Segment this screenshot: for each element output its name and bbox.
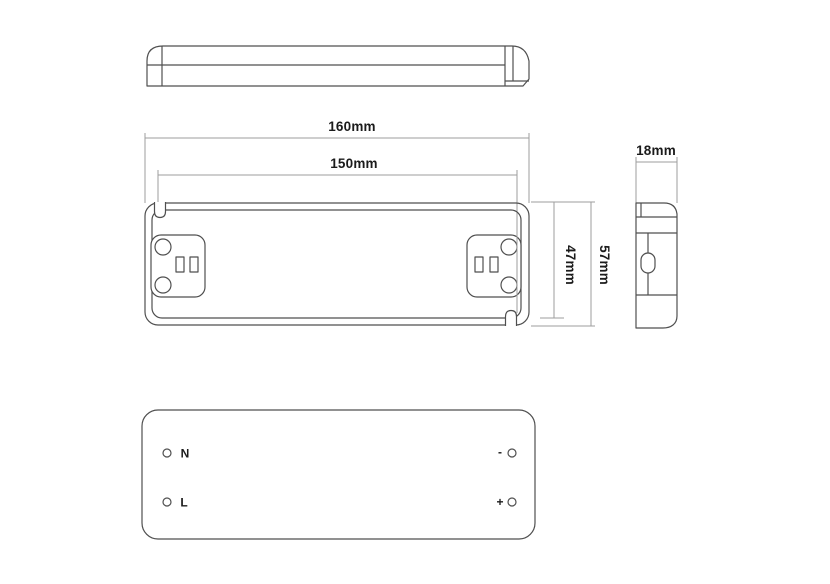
led-driver-dimension-drawing: N L - + 160mm 150mm 18mm 47mm 57mm — [0, 0, 830, 584]
technical-drawing-page: N L - + 160mm 150mm 18mm 47mm 57mm — [0, 0, 830, 584]
front-view — [145, 202, 529, 326]
dimension-label-47mm: 47mm — [563, 245, 578, 285]
dimension-lines — [145, 133, 677, 326]
knockout-oval — [641, 253, 655, 273]
terminal-hole-live — [163, 498, 171, 506]
side-view-outline — [147, 46, 529, 86]
dimension-label-18mm: 18mm — [636, 143, 676, 158]
terminal-label-neutral: N — [181, 447, 190, 461]
dimension-label-160mm: 160mm — [328, 119, 376, 134]
terminal-hole-neutral — [163, 449, 171, 457]
dimension-label-57mm: 57mm — [597, 245, 612, 285]
terminal-hole-negative — [508, 449, 516, 457]
terminal-block-right — [467, 235, 521, 297]
front-view-inner-outline — [152, 210, 521, 318]
mounting-notch-top-left — [155, 202, 166, 218]
dimension-label-150mm: 150mm — [330, 156, 378, 171]
end-view — [636, 203, 677, 328]
terminal-label-negative: - — [498, 445, 502, 459]
terminal-block-left-body — [151, 235, 205, 297]
bottom-view-outline — [142, 410, 535, 539]
mounting-notch-bottom-right — [506, 311, 517, 327]
bottom-view: N L - + — [142, 410, 535, 539]
terminal-label-positive: + — [496, 495, 503, 509]
terminal-hole-positive — [508, 498, 516, 506]
terminal-label-live: L — [180, 496, 187, 510]
side-view — [147, 46, 529, 86]
terminal-block-left — [151, 235, 205, 297]
